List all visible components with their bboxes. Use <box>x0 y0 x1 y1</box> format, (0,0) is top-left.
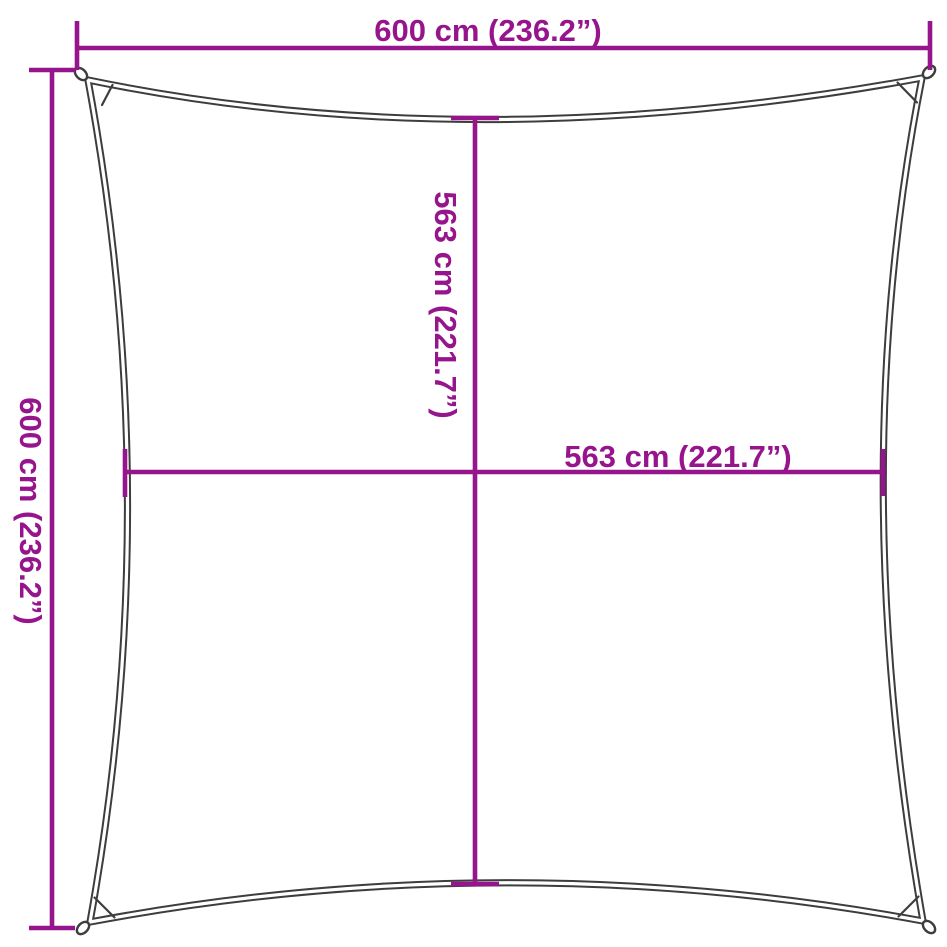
dimension-left-height: 600 cm (236.2”) <box>13 70 75 928</box>
shade-sail-dimension-diagram: 600 cm (236.2”) 600 cm (236.2”) 563 cm (… <box>0 0 947 947</box>
dimension-label-center-width: 563 cm (221.7”) <box>564 439 791 474</box>
sail-shape <box>73 64 938 937</box>
dimension-label-center-height: 563 cm (221.7”) <box>428 191 463 418</box>
dimension-label-top-width: 600 cm (236.2”) <box>374 13 601 48</box>
sail-outline <box>88 78 923 922</box>
diagram-canvas: 600 cm (236.2”) 600 cm (236.2”) 563 cm (… <box>0 0 947 947</box>
dimension-label-left-height: 600 cm (236.2”) <box>13 397 48 624</box>
dimension-top-width: 600 cm (236.2”) <box>77 13 930 70</box>
